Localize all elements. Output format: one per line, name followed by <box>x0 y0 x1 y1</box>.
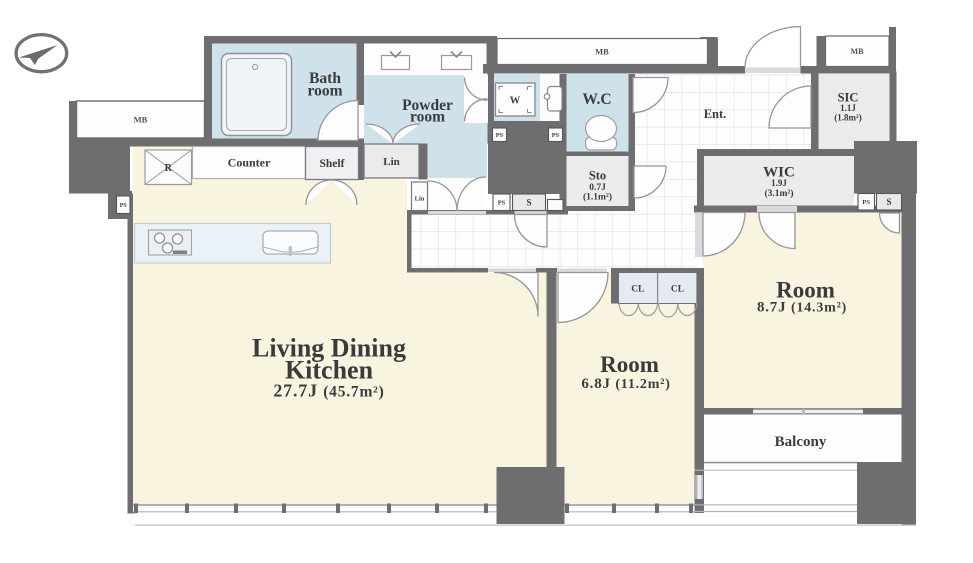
svg-text:1.9J: 1.9J <box>771 178 787 188</box>
svg-text:(3.1m²): (3.1m²) <box>765 188 794 199</box>
svg-text:S: S <box>526 198 531 208</box>
svg-text:(1.8m²): (1.8m²) <box>834 113 861 123</box>
svg-text:Ent.: Ent. <box>704 107 727 121</box>
svg-text:CL: CL <box>631 285 644 295</box>
svg-text:1.1J: 1.1J <box>840 103 856 113</box>
svg-text:S: S <box>886 197 891 207</box>
svg-text:8.7J (14.3m²): 8.7J (14.3m²) <box>757 300 847 316</box>
svg-text:PS: PS <box>862 199 870 206</box>
svg-text:R: R <box>165 163 173 174</box>
svg-text:PS: PS <box>120 203 128 209</box>
svg-text:6.8J (11.2m²): 6.8J (11.2m²) <box>581 376 670 392</box>
svg-text:MB: MB <box>851 47 865 56</box>
svg-text:PS: PS <box>496 132 504 139</box>
svg-text:PS: PS <box>552 132 560 139</box>
svg-text:room: room <box>410 109 445 126</box>
svg-text:Balcony: Balcony <box>775 434 827 450</box>
svg-text:Lin: Lin <box>415 196 425 203</box>
svg-text:CL: CL <box>671 285 684 295</box>
svg-text:Lin: Lin <box>383 156 400 168</box>
svg-text:27.7J (45.7m²): 27.7J (45.7m²) <box>273 381 384 401</box>
svg-text:Shelf: Shelf <box>320 158 345 170</box>
svg-text:0.7J: 0.7J <box>589 183 606 193</box>
svg-text:room: room <box>307 83 342 100</box>
svg-text:(1.1m²): (1.1m²) <box>583 192 612 203</box>
svg-text:W: W <box>510 96 521 107</box>
svg-text:MB: MB <box>134 115 148 125</box>
svg-text:W.C: W.C <box>582 91 611 108</box>
svg-text:MB: MB <box>595 47 609 57</box>
svg-text:Sto: Sto <box>589 169 606 183</box>
svg-text:PS: PS <box>498 200 506 207</box>
svg-text:Room: Room <box>600 352 659 377</box>
svg-text:Counter: Counter <box>228 156 271 170</box>
